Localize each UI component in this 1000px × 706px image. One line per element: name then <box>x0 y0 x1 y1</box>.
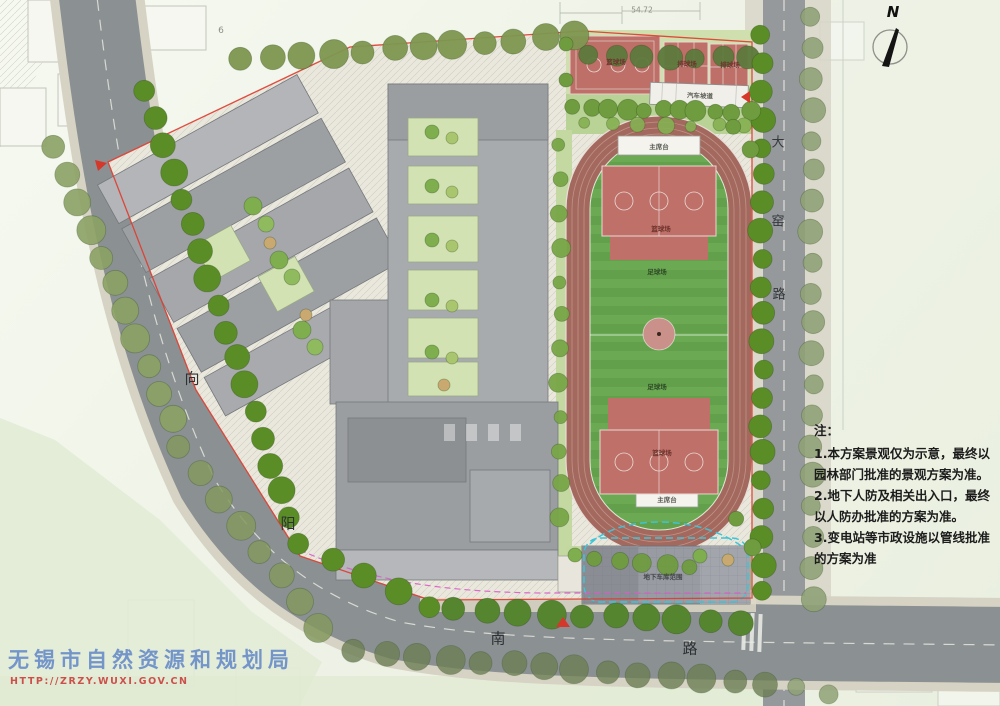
note-line-3: 3.变电站等市政设施以管线批准的方案为准 <box>814 527 996 569</box>
label-basketball-north: 篮球场 <box>651 223 671 233</box>
label-car-ramp: 汽车坡道 <box>687 90 713 101</box>
label-volleyball-2: 排球场 <box>720 59 740 69</box>
dimension-lines <box>560 2 700 24</box>
road-label-nan-2: 路 <box>682 638 697 659</box>
north-compass <box>873 28 907 67</box>
road-label-dayao-3: 路 <box>772 284 785 303</box>
label-volleyball-1: 排球场 <box>677 58 697 68</box>
site-plan-canvas: 向 阳 南 路 大 窑 路 篮球场 排球场 排球场 汽车坡道 主席台 主席台 篮… <box>0 0 1000 706</box>
label-football-north: 足球场 <box>647 266 667 276</box>
label-rostrum-south: 主席台 <box>657 494 677 504</box>
label-football-south: 足球场 <box>647 381 667 391</box>
plan-notes: 注： 1.本方案景观仅为示意，最终以园林部门批准的景观方案为准。 2.地下人防及… <box>814 420 996 569</box>
watermark-agency: 无锡市自然资源和规划局 <box>8 644 294 674</box>
running-track <box>566 116 752 554</box>
label-basketball-nw: 篮球场 <box>606 56 626 66</box>
watermark-url: HTTP://ZRZY.WUXI.GOV.CN <box>10 676 189 687</box>
dimension-top: 54.72 <box>631 6 652 15</box>
label-underground-garage: 地下车库范围 <box>644 571 683 581</box>
north-label: N <box>887 3 900 21</box>
site-plan-drawing <box>0 0 1000 706</box>
road-label-nan-1: 南 <box>490 628 505 649</box>
note-line-2: 2.地下人防及相关出入口，最终以人防办批准的方案为准。 <box>814 485 996 527</box>
block-number: 6 <box>218 26 224 36</box>
notes-heading: 注： <box>814 420 996 441</box>
road-label-xiangyang-2: 阳 <box>280 513 295 534</box>
road-label-xiangyang-1: 向 <box>184 368 199 389</box>
label-rostrum-north: 主席台 <box>649 141 669 151</box>
label-basketball-south: 篮球场 <box>652 447 672 457</box>
note-line-1: 1.本方案景观仅为示意，最终以园林部门批准的景观方案为准。 <box>814 443 996 485</box>
road-label-dayao-2: 窑 <box>771 211 784 230</box>
road-label-dayao-1: 大 <box>771 132 784 151</box>
